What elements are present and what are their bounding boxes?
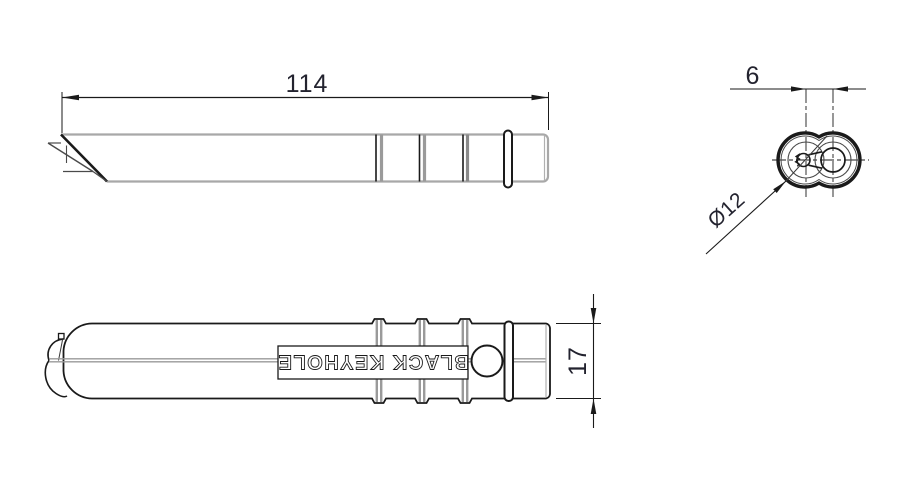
collar-ring (505, 322, 514, 402)
round-hole (472, 346, 503, 377)
arrowhead-left (62, 95, 79, 101)
spacing-dimension-value: 6 (746, 62, 761, 90)
arrowhead-top (591, 308, 597, 324)
diameter-dimension-value: Ø12 (704, 188, 750, 233)
spacing-dimension: 6 (730, 62, 866, 92)
bottom-view: BLACK KEYHOLE 17 (45, 294, 601, 428)
arrowhead-right (833, 86, 848, 91)
part-label-text: BLACK KEYHOLE (277, 351, 469, 373)
tip-upper-lobe (48, 339, 63, 361)
chisel-edge-far (48, 143, 93, 172)
chisel-tip (48, 135, 107, 182)
bore-slot-bottom (809, 165, 823, 168)
length-dimension-value: 114 (286, 70, 329, 98)
arrowhead-left (791, 86, 806, 91)
width-dimension: 17 (556, 294, 601, 428)
tip-notch (59, 334, 65, 340)
label-plate: BLACK KEYHOLE (277, 346, 469, 379)
technical-drawing-sheet: 114 6 (0, 0, 906, 482)
arrowhead-right (532, 95, 549, 101)
diameter-leader: Ø12 (704, 136, 827, 254)
collar-ring (504, 131, 512, 188)
leader-arrowhead (773, 181, 786, 193)
length-dimension: 114 (62, 70, 549, 133)
end-view: 6 Ø12 (704, 62, 869, 254)
side-view-body-outline (61, 135, 548, 182)
chisel-edge-near (61, 135, 107, 182)
drawing-canvas: 114 6 (0, 0, 906, 482)
tip-inner-edge (59, 340, 63, 361)
side-view-ribs (376, 135, 468, 182)
width-dimension-value: 17 (564, 346, 592, 376)
side-view: 114 (48, 70, 549, 188)
arrowhead-bottom (591, 399, 597, 415)
